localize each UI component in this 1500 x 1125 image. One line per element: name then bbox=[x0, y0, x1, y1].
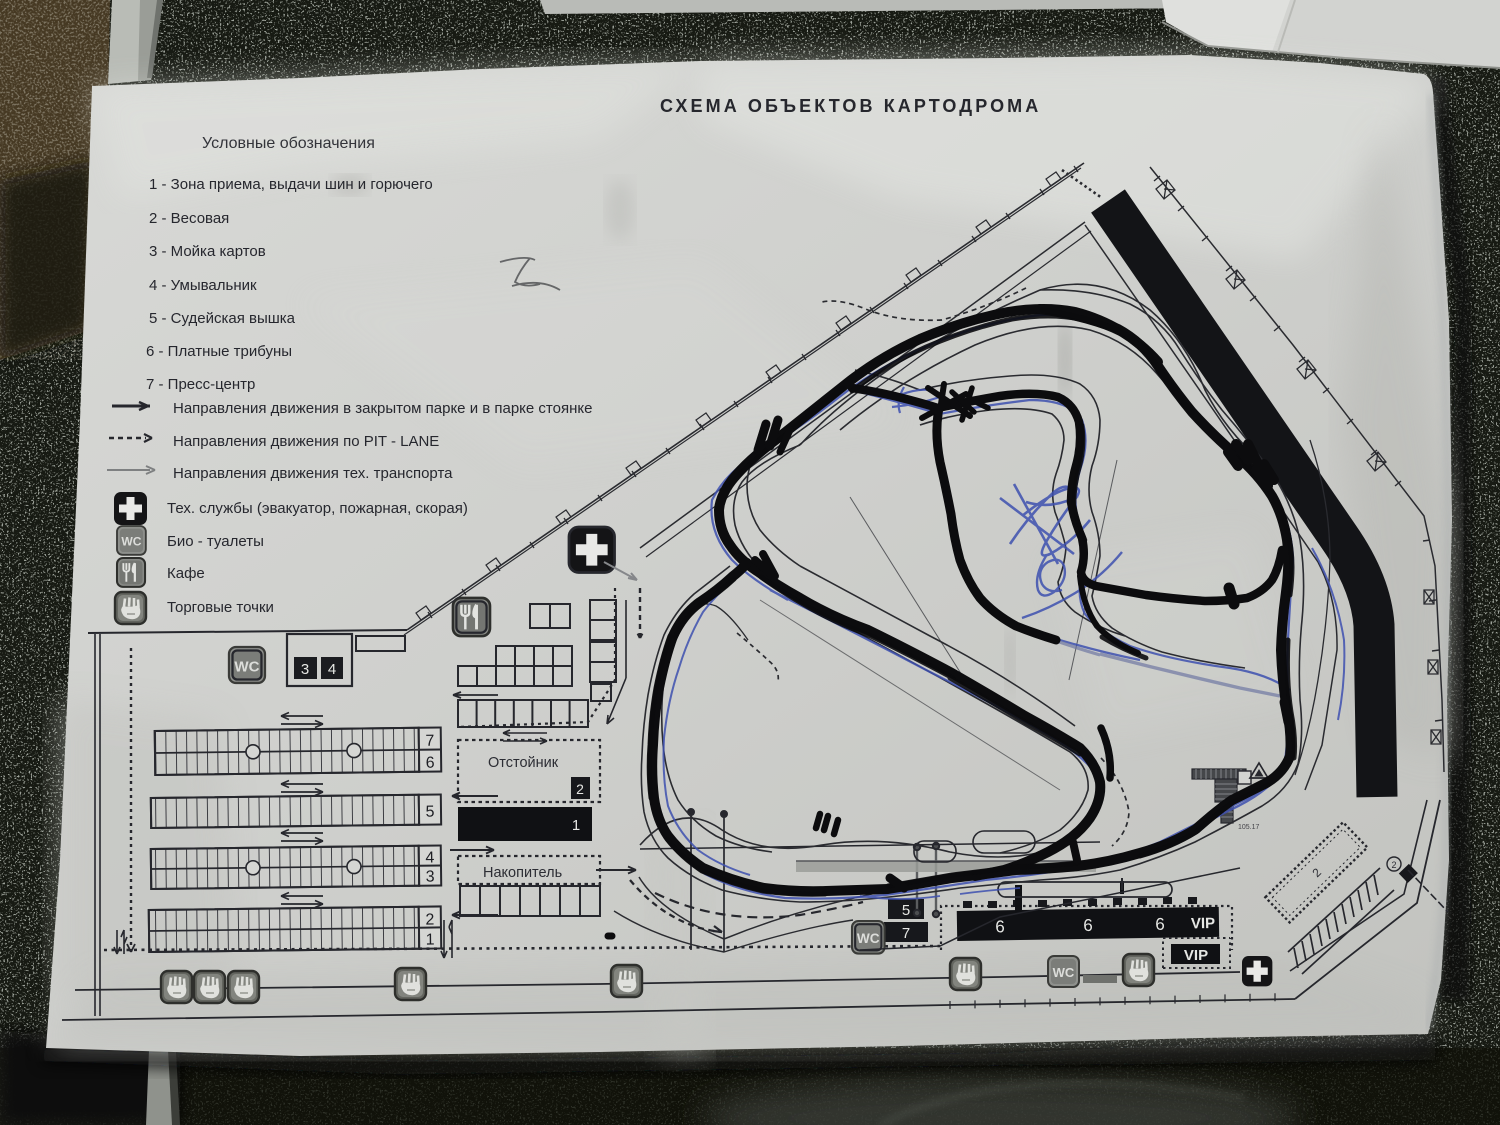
svg-text:3: 3 bbox=[301, 661, 309, 678]
svg-text:6 - Платные трибуны: 6 - Платные трибуны bbox=[146, 343, 292, 360]
svg-text:VIP: VIP bbox=[1191, 915, 1215, 932]
svg-text:4: 4 bbox=[328, 661, 336, 678]
svg-text:6: 6 bbox=[995, 917, 1005, 936]
svg-text:Тех. службы (эвакуатор, пожарн: Тех. службы (эвакуатор, пожарная, скорая… bbox=[167, 500, 468, 517]
svg-text:4 - Умывальник: 4 - Умывальник bbox=[149, 277, 257, 294]
svg-text:5: 5 bbox=[902, 902, 910, 919]
svg-text:7: 7 bbox=[902, 925, 910, 942]
svg-text:4: 4 bbox=[425, 850, 434, 867]
svg-text:2: 2 bbox=[425, 912, 434, 929]
svg-text:1: 1 bbox=[572, 817, 580, 834]
svg-text:5: 5 bbox=[425, 804, 434, 821]
svg-text:Направления движения тех. тран: Направления движения тех. транспорта bbox=[173, 465, 453, 482]
svg-text:7: 7 bbox=[425, 733, 434, 750]
svg-text:Торговые точки: Торговые точки bbox=[167, 599, 274, 616]
svg-text:6: 6 bbox=[1083, 916, 1093, 935]
svg-text:Условные обозначения: Условные обозначения bbox=[202, 135, 375, 152]
svg-text:2: 2 bbox=[1391, 860, 1396, 870]
svg-text:2: 2 bbox=[576, 781, 584, 797]
svg-text:6: 6 bbox=[1155, 915, 1165, 934]
svg-text:2 - Весовая: 2 - Весовая bbox=[149, 210, 229, 227]
svg-text:3 - Мойка картов: 3 - Мойка картов bbox=[149, 243, 266, 260]
svg-text:Направления движения в закрыто: Направления движения в закрытом парке и … bbox=[173, 400, 592, 417]
svg-text:VIP: VIP bbox=[1184, 947, 1208, 964]
svg-text:105.17: 105.17 bbox=[1238, 824, 1260, 831]
svg-text:1: 1 bbox=[426, 932, 435, 949]
svg-text:5 - Судейская вышка: 5 - Судейская вышка bbox=[149, 310, 296, 327]
svg-text:1 - Зона приема, выдачи шин и: 1 - Зона приема, выдачи шин и горючего bbox=[149, 176, 433, 193]
svg-text:7 - Пресс-центр: 7 - Пресс-центр bbox=[146, 376, 255, 393]
svg-text:Кафе: Кафе bbox=[167, 565, 205, 582]
svg-text:Направления движения по PIT -: Направления движения по PIT - LANE bbox=[173, 433, 439, 450]
svg-text:3: 3 bbox=[426, 869, 435, 886]
svg-text:Био - туалеты: Био - туалеты bbox=[167, 533, 264, 550]
svg-text:Отстойник: Отстойник bbox=[488, 755, 559, 771]
svg-text:Накопитель: Накопитель bbox=[483, 865, 562, 881]
svg-text:6: 6 bbox=[426, 755, 435, 772]
svg-text:СХЕМА ОБЪЕКТОВ КАРТОДРОМА: СХЕМА ОБЪЕКТОВ КАРТОДРОМА bbox=[660, 96, 1041, 116]
